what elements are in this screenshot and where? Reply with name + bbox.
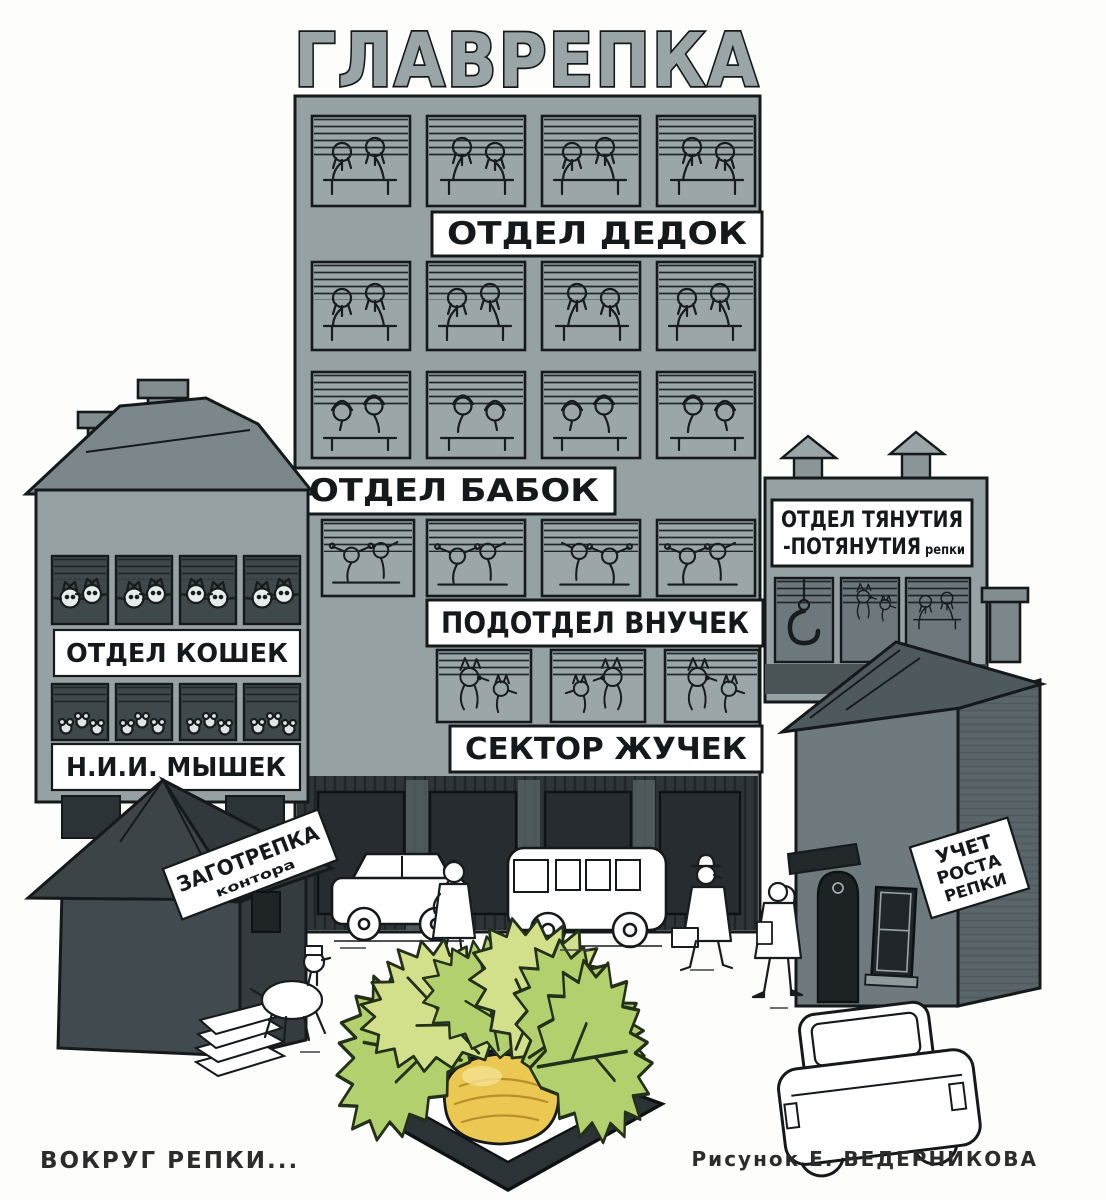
left-building: ОТДЕЛ КОШЕК Н.И.И. МЫШЕК xyxy=(26,380,314,838)
house-chimney xyxy=(990,598,1020,662)
cartoon-page: ГЛАВРЕПКА ОТДЕЛ ДЕДОК xyxy=(0,0,1106,1200)
sign-otdel-babok: ОТДЕЛ БАБОК xyxy=(293,468,615,514)
house-door xyxy=(818,872,858,1002)
left-building-roof xyxy=(26,398,314,494)
roof-vents xyxy=(782,432,944,480)
sign-otdel-tyanutiya: ОТДЕЛ ТЯНУТИЯ -ПОТЯНУТИЯ репки xyxy=(772,500,972,566)
sign-text-tyanutiya-note: репки xyxy=(925,543,965,558)
sign-podotdel-vnuchek: ПОДОТДЕЛ ВНУЧЕК xyxy=(427,600,763,646)
sign-text-zhuchek: СЕКТОР ЖУЧЕК xyxy=(465,732,747,767)
sign-text-tyanutiya-1: ОТДЕЛ ТЯНУТИЯ xyxy=(781,508,963,533)
sign-text-dedok: ОТДЕЛ ДЕДОК xyxy=(447,216,747,252)
caption-artist-credit: Рисунок Е. ВЕДЕРНИКОВА xyxy=(692,1147,1038,1171)
sign-text-koshek: ОТДЕЛ КОШЕК xyxy=(66,639,288,669)
cartoon-canvas: ГЛАВРЕПКА ОТДЕЛ ДЕДОК xyxy=(0,0,1106,1200)
right-building-windows xyxy=(775,578,970,662)
main-building: ГЛАВРЕПКА ОТДЕЛ ДЕДОК xyxy=(293,18,763,932)
sign-otdel-koshek: ОТДЕЛ КОШЕК xyxy=(54,630,300,676)
sign-otdel-dedok: ОТДЕЛ ДЕДОК xyxy=(432,212,762,256)
rooftop-sign-glavrepka: ГЛАВРЕПКА xyxy=(294,18,760,104)
sign-text-myshek: Н.И.И. МЫШЕК xyxy=(66,753,286,783)
kiosk-window xyxy=(252,892,280,932)
sign-text-babok: ОТДЕЛ БАБОК xyxy=(309,473,599,509)
caption-left: ВОКРУГ РЕПКИ... xyxy=(40,1148,299,1174)
sign-text-vnuchek: ПОДОТДЕЛ ВНУЧЕК xyxy=(441,606,749,640)
sign-text-tyanutiya-2: -ПОТЯНУТИЯ xyxy=(783,535,921,560)
sign-nii-myshek: Н.И.И. МЫШЕК xyxy=(52,744,300,790)
sign-sektor-zhuchek: СЕКТОР ЖУЧЕК xyxy=(450,726,762,772)
window-row-dogs xyxy=(437,650,759,722)
